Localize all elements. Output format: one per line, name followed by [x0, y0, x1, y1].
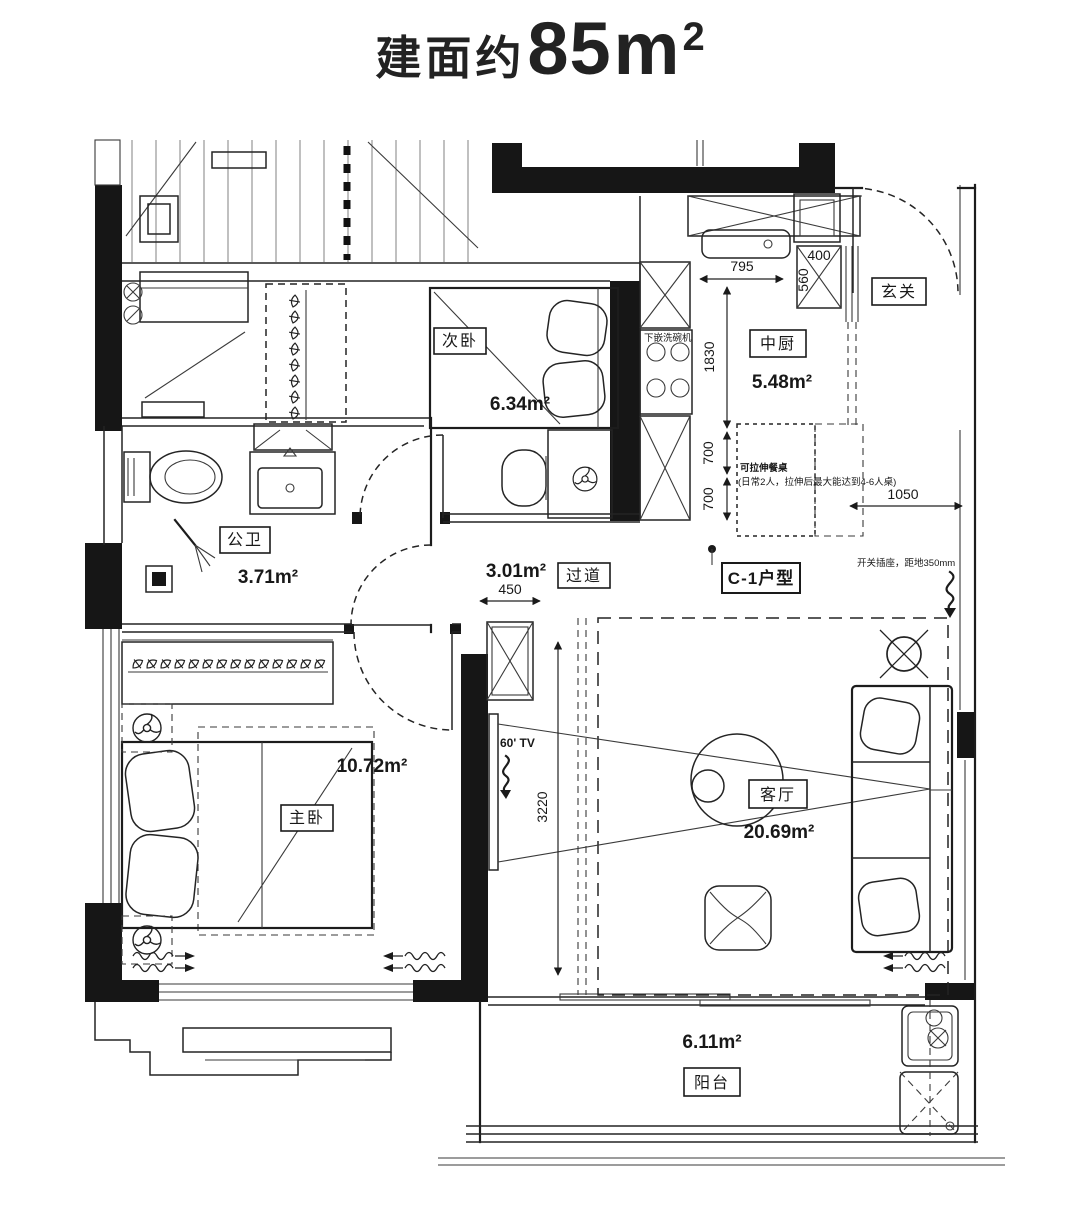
toilet: [124, 451, 222, 503]
balcony: 阳台 6.11m²: [682, 1000, 958, 1136]
master-wardrobe: [122, 642, 333, 704]
switch-note: 开关插座，距地350mm: [857, 557, 955, 569]
corridor-label: 过道: [566, 567, 602, 585]
bathroom-door-arc: [351, 545, 431, 625]
hatch-area: [122, 140, 480, 262]
dining-note-body: (日常2人，拉伸后最大能达到4-6人桌): [738, 476, 896, 488]
shower-head: [175, 520, 215, 572]
living-room-label: 客厅: [760, 786, 796, 804]
wall-lines: [95, 140, 1005, 1165]
corridor-storage-box: [487, 622, 533, 700]
floor-drain: [146, 566, 172, 592]
secondary-bedroom-label: 次卧: [442, 332, 478, 350]
tv-unit: 60' TV: [489, 714, 535, 870]
kitchen-area: 5.48m²: [752, 372, 812, 393]
bathroom-label: 公卫: [227, 532, 263, 549]
dim-table-gap-upper: 700: [700, 441, 716, 465]
secondary-bedroom-area: 6.34m²: [490, 394, 550, 415]
entry-label: 玄关: [881, 283, 917, 301]
bathroom: 公卫 3.71m²: [124, 424, 431, 625]
master-bed: [122, 742, 372, 928]
dining-note-title: 可拉伸餐桌: [740, 462, 788, 474]
dim-entry-cabinet-width: 400: [807, 247, 831, 263]
dimensions: 795 1830 400 560 700 700 1050 450 3220: [480, 247, 962, 975]
unit-type-label: C-1户型: [728, 568, 794, 588]
dim-living-width: 3220: [534, 791, 550, 822]
kitchen-tall-cabinets: [640, 262, 692, 520]
dim-kitchen-width: 795: [730, 258, 754, 274]
bathroom-area: 3.71m²: [238, 567, 298, 588]
utility-nook: [124, 272, 248, 417]
dim-entry-cabinet-depth: 560: [795, 268, 811, 292]
floorplan-drawing: 次卧 6.34m² 下嵌洗碗机: [0, 0, 1080, 1211]
sofa: [852, 686, 952, 952]
kitchen-label: 中厨: [760, 335, 796, 353]
balcony-label: 阳台: [694, 1074, 730, 1092]
dim-corridor-width: 450: [498, 581, 522, 597]
ottoman: [705, 886, 771, 950]
master-bedroom-label: 主卧: [289, 809, 325, 827]
dining-nook: 可拉伸餐桌 (日常2人，拉伸后最大能达到4-6人桌) C-1户型 开关插座，距地…: [708, 424, 956, 618]
balcony-area: 6.11m²: [682, 1032, 741, 1053]
master-door-arc: [354, 632, 452, 730]
corridor-area: 3.01m²: [486, 561, 546, 582]
floorplan-page: 建面约85m2: [0, 0, 1080, 1211]
vanity-sink: [250, 424, 335, 514]
secondary-bedroom: 次卧 6.34m²: [266, 284, 618, 518]
dishwasher-note: 下嵌洗碗机: [644, 332, 692, 344]
tv-label: 60' TV: [500, 736, 535, 750]
entry: 玄关: [853, 188, 958, 305]
dim-kitchen-depth: 1830: [701, 341, 717, 372]
switch-squiggle-arrow: [944, 572, 956, 618]
dim-entry-walk: 1050: [887, 486, 918, 502]
fridge: [794, 194, 840, 242]
master-bedroom: 主卧 10.72m²: [122, 632, 452, 972]
living-room-area: 20.69m²: [744, 822, 815, 843]
washing-machine: [900, 1072, 958, 1134]
unit-type-callout: C-1户型: [708, 545, 800, 593]
dim-table-gap-lower: 700: [700, 487, 716, 511]
master-bedroom-area: 10.72m²: [337, 756, 408, 777]
